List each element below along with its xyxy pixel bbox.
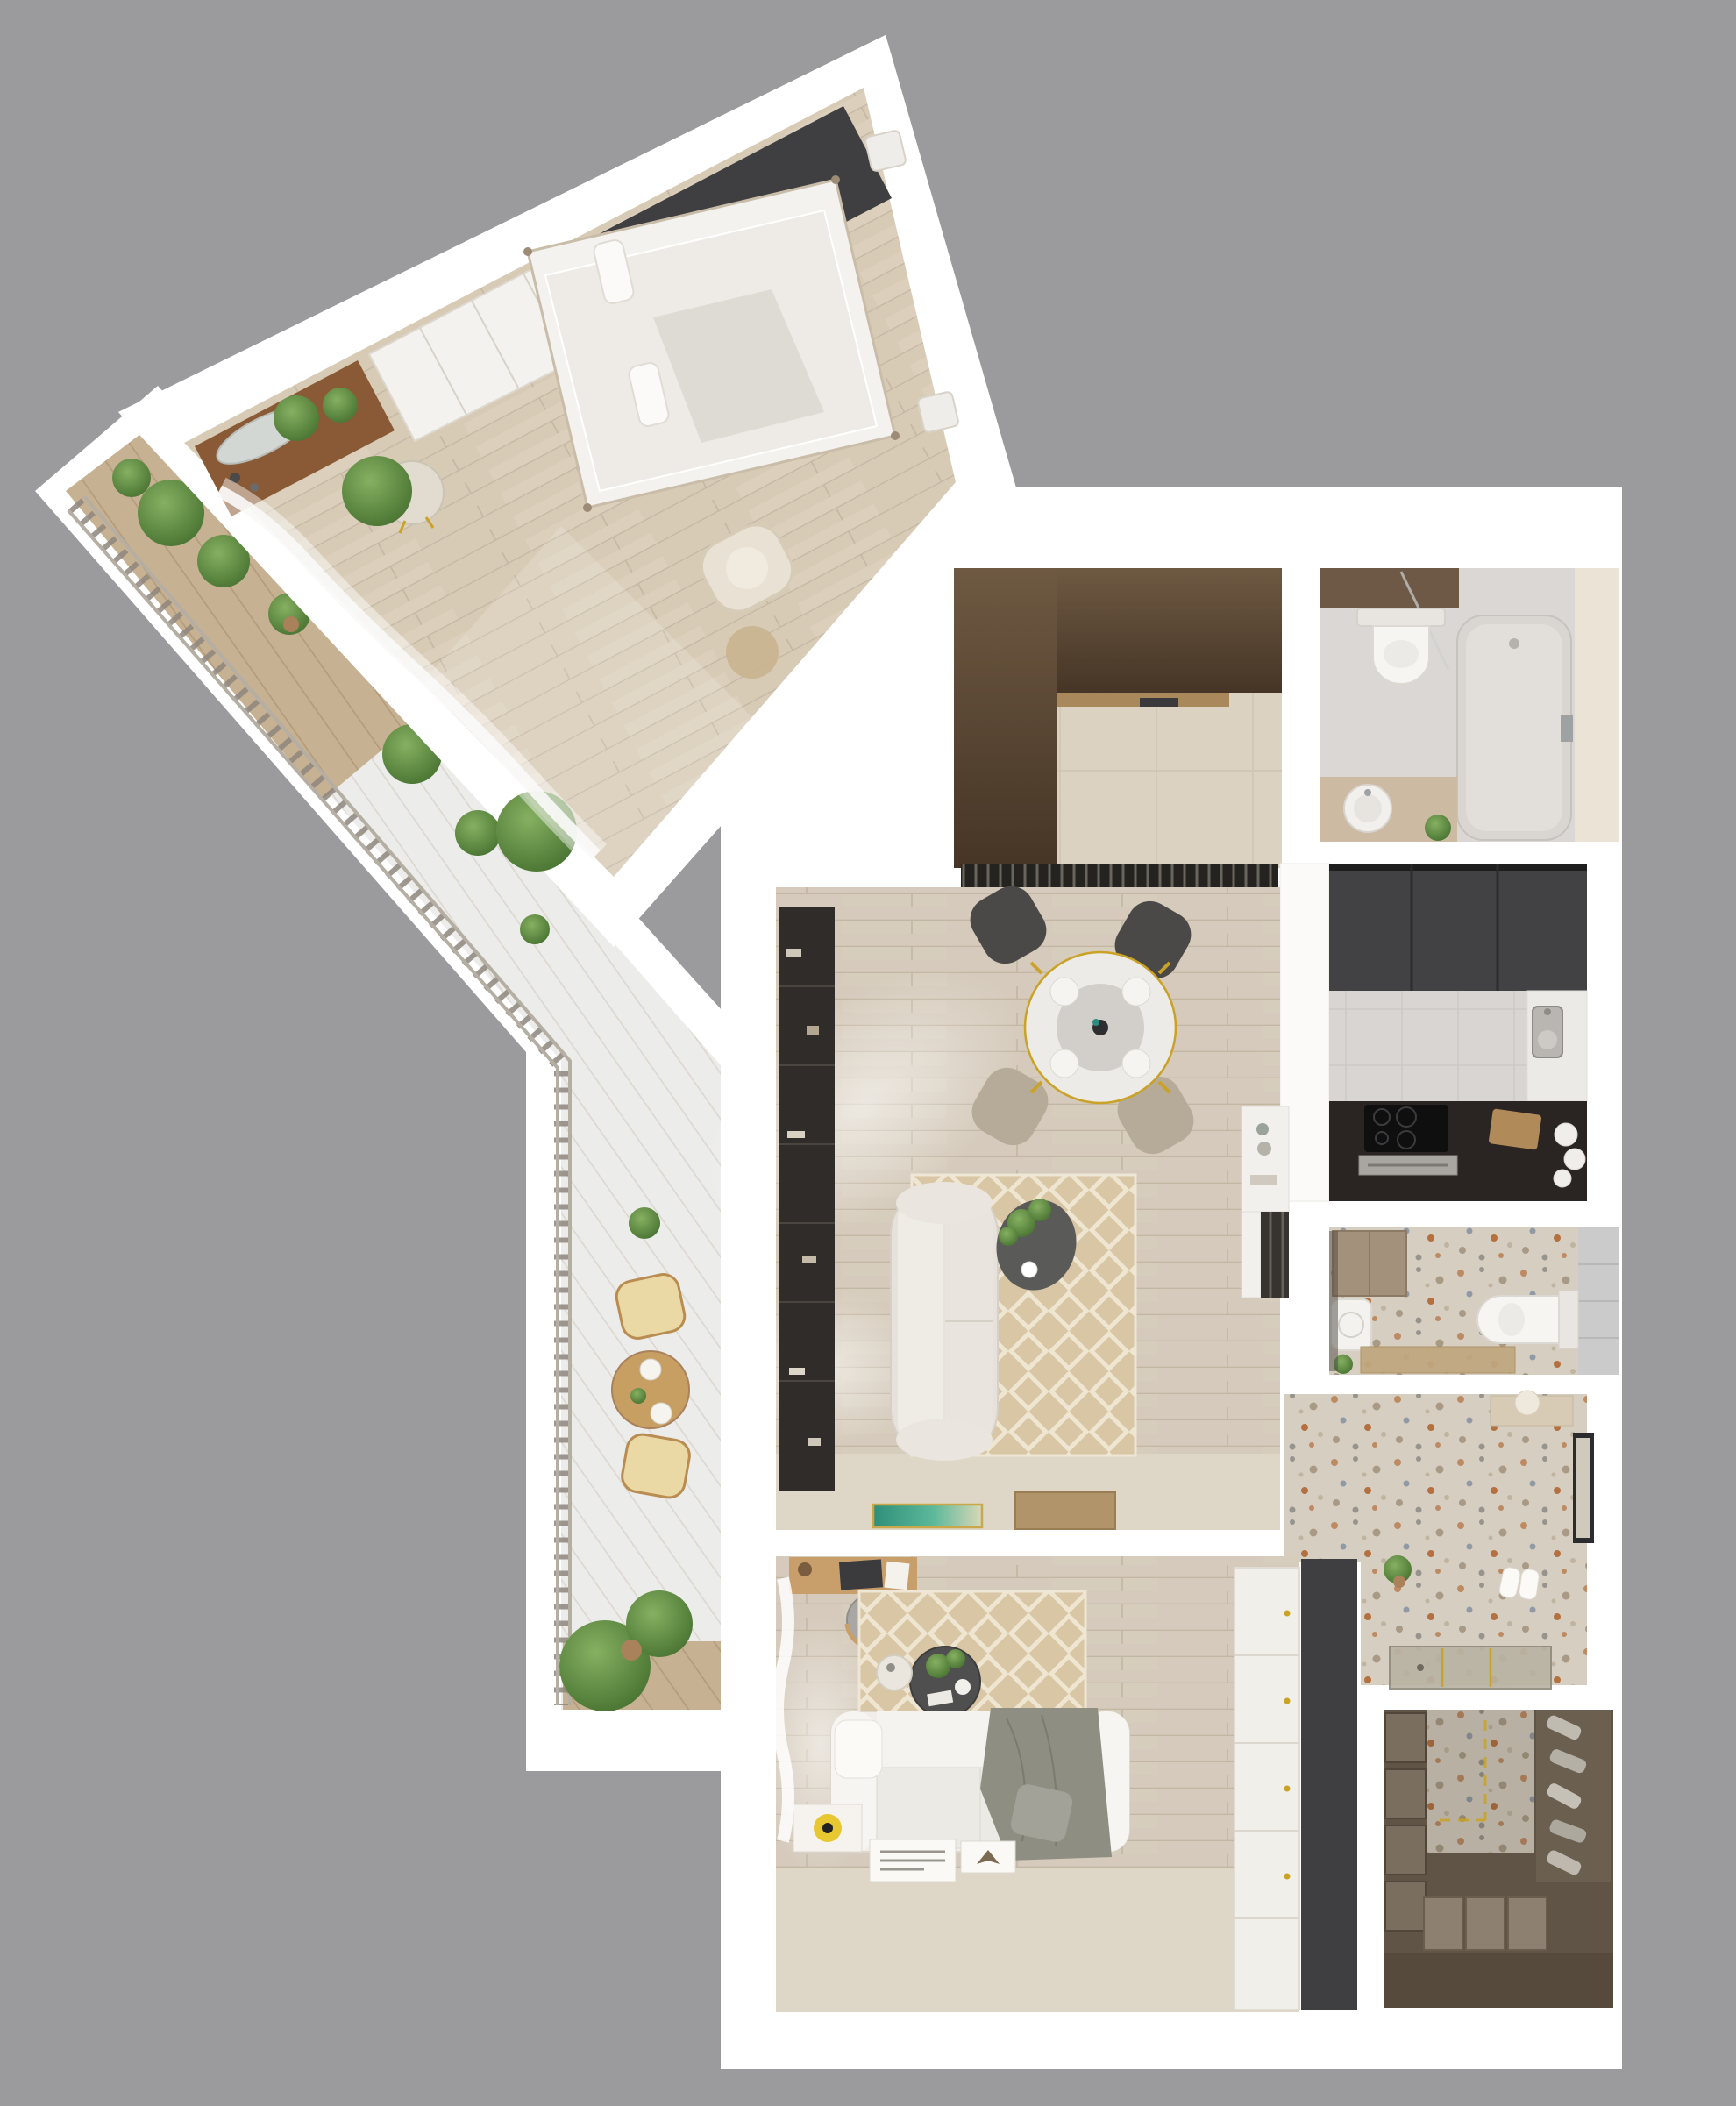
induction-hob — [1364, 1105, 1448, 1152]
drain — [1509, 638, 1519, 649]
room-wc — [1329, 1227, 1619, 1375]
armchair-cushion — [726, 547, 768, 589]
cutting-board — [1488, 1108, 1541, 1149]
hall-wardrobe-left — [954, 568, 1057, 868]
room-kitchen — [1280, 864, 1587, 1201]
dark-wardrobe-strip — [1301, 1559, 1357, 2010]
tub-faucet — [1561, 715, 1573, 742]
bathroom-top-cabinet — [1320, 568, 1459, 608]
bathroom-vanity — [1320, 777, 1457, 842]
second-room-tile-strip — [776, 1868, 1299, 2012]
laptop — [839, 1559, 883, 1590]
floor-painting — [873, 1505, 982, 1527]
doormat — [1015, 1492, 1115, 1529]
white-pillow — [835, 1720, 882, 1778]
wc-mat — [1361, 1347, 1515, 1373]
bedroom-plant — [342, 456, 412, 526]
bedroom-round-rug — [726, 626, 779, 679]
hall-shelf-item — [1140, 698, 1178, 707]
wc-toilet — [1477, 1291, 1578, 1348]
closet-drawers — [1424, 1897, 1547, 1950]
side-table — [877, 1655, 912, 1690]
closet-hanging-clothes — [1536, 1710, 1611, 1882]
kitchen-floor — [1329, 991, 1554, 1101]
room-bathroom — [1320, 568, 1619, 842]
bistro-chair — [620, 1432, 692, 1500]
floor-plan-render — [0, 0, 1736, 2106]
papers — [885, 1562, 910, 1590]
second-sofa — [831, 1708, 1129, 1861]
bookshelf — [779, 907, 835, 1491]
living-console — [1242, 1106, 1289, 1298]
round-basket — [1515, 1391, 1540, 1415]
leaning-mirror — [1573, 1433, 1594, 1543]
living-sofa — [891, 1182, 998, 1461]
bistro-chair — [614, 1271, 687, 1341]
room-second — [754, 1556, 1299, 2012]
kitchen-upper-cabinets — [1329, 864, 1587, 991]
room-walk-in-closet — [1384, 1710, 1613, 2008]
chest-of-drawers — [1234, 1568, 1299, 2010]
room-entry-hall — [954, 568, 1282, 889]
door-handle — [1417, 1664, 1424, 1671]
plate — [1564, 1149, 1585, 1170]
kitchen-sink — [1533, 1007, 1562, 1057]
balcony-bistro-set — [612, 1271, 692, 1500]
marble-wall — [1575, 568, 1619, 842]
plate — [1555, 1123, 1577, 1146]
entrance-door — [1390, 1647, 1551, 1689]
vanity-plant — [1425, 815, 1451, 841]
desk — [789, 1557, 917, 1594]
wc-door-edge — [1329, 1231, 1338, 1371]
plate — [1554, 1170, 1571, 1187]
screenshot-canvas — [0, 0, 1736, 2106]
nightstand — [864, 130, 907, 172]
bathtub — [1457, 615, 1573, 840]
nightstand — [917, 391, 959, 433]
